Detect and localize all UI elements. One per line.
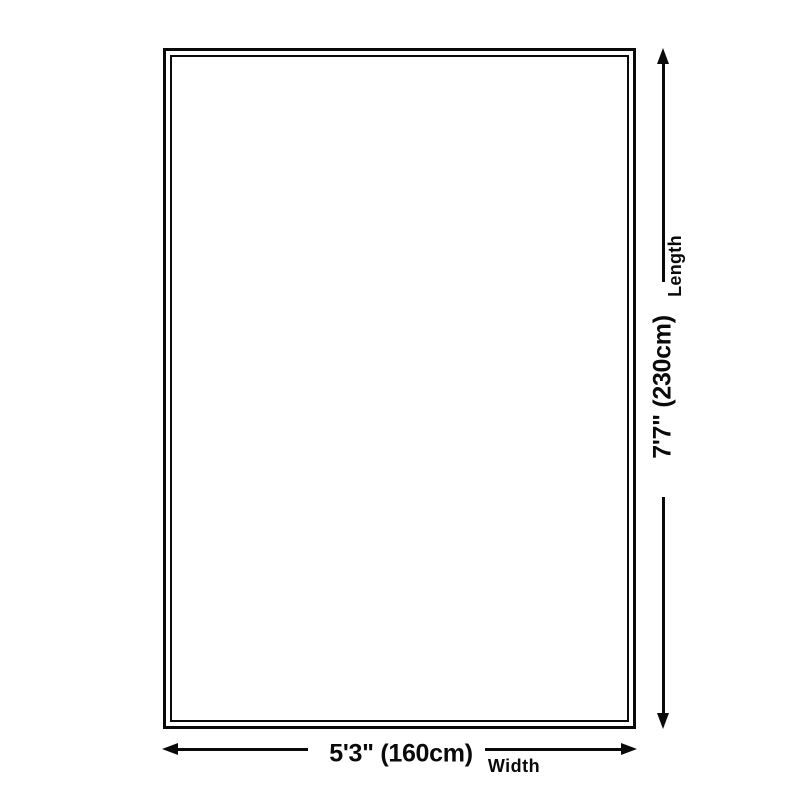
width-axis-label: Width: [488, 757, 540, 775]
width-value: 5'3" (160cm): [329, 742, 472, 767]
width-line-left: [176, 748, 308, 751]
rug-size-diagram: Length 7'7" (230cm) 5'3" (160cm) Width: [0, 0, 800, 800]
arrow-right-icon: [621, 743, 637, 755]
rug-outline: [163, 48, 636, 729]
length-axis-label: Length: [666, 235, 684, 297]
width-line-right: [485, 748, 622, 751]
arrow-down-icon: [657, 713, 669, 729]
length-line-lower: [662, 497, 665, 713]
length-value: 7'7" (230cm): [651, 315, 676, 458]
rug-inner-outline: [170, 55, 629, 722]
